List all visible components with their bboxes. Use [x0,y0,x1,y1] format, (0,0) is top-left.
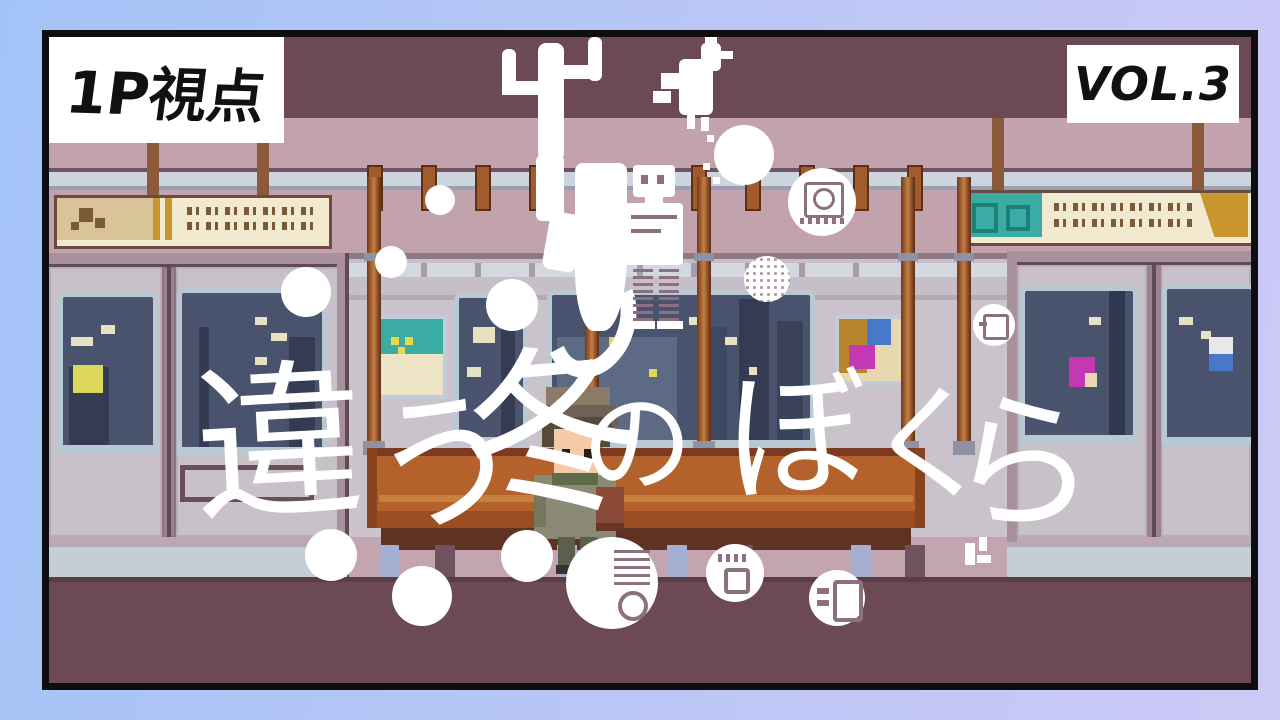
pole-bracket [694,253,714,261]
volume-badge-label: VOL.3 [1074,57,1232,111]
rooster-trail-pixel [713,177,720,184]
snow-dot [425,185,455,215]
washing-machine-drum [813,188,835,210]
cactus-icon [502,49,516,95]
robot-eye [641,175,648,184]
right-door-window-b-frame [1162,284,1256,444]
pole-bracket [898,253,918,261]
banner-teal-pixel [972,203,998,233]
poster-pixel [405,337,413,345]
snow-dot [392,566,452,626]
machine-detail [614,545,650,589]
left-door-window-a-frame [58,292,158,452]
bench-leg [851,545,871,577]
banner-star-pixel [95,218,105,228]
banner-pixel-text [1054,219,1194,227]
machine-detail [833,580,863,622]
robot-leg [633,265,653,321]
snow-dot [281,267,331,317]
rooster-icon [701,43,721,71]
machine-gear [618,591,648,621]
rooster-icon [687,115,695,129]
bench-leg [667,545,687,577]
gear-detail [979,322,987,326]
banner-gold-end [1200,193,1248,237]
robot-icon [633,165,675,197]
banner-pixel-text [187,207,315,215]
ad-banner-left [54,195,332,249]
strap-post [475,165,491,211]
right-door-lintel [1007,251,1251,265]
machine-circle-icon [809,570,865,626]
banner-pixel-text [187,222,315,230]
mini-glyph-icon [977,555,991,563]
machine-circle-icon [706,544,764,602]
title-char-1: 違 [190,356,369,535]
banner-star-pixel [71,222,79,230]
rooster-trail-pixel [703,163,710,170]
snow-dot [568,219,596,247]
ribbon-icon [575,163,627,331]
poster-pixel [867,319,891,345]
left-door-seam-line [167,267,171,537]
cactus-icon [538,43,564,161]
snow-dot [486,279,538,331]
machine-gear [724,568,750,594]
banner-hanger-rod [992,118,1004,190]
rooster-icon [653,91,671,103]
window-sill [58,445,158,453]
robot-panel-line [631,229,661,233]
viewpoint-badge-label: 1P視点 [62,45,271,134]
gear-detail [983,314,1009,340]
gear-circle-icon [973,304,1015,346]
robot-foot [657,321,683,329]
robot-icon [625,203,683,265]
left-door-lintel [49,253,347,267]
machine-detail [817,600,829,606]
robot-eye [657,175,664,184]
half-machine-circle-icon [566,537,658,629]
right-door-seam-line [1152,265,1156,537]
viewpoint-badge: 1P視点 [49,37,284,143]
banner-pixel-text [1054,203,1194,211]
machine-detail [817,588,829,594]
snow-dot [714,125,774,185]
robot-leg [659,265,679,321]
bench-leg [905,545,925,577]
banner-icon-box [57,198,153,240]
banner-teal-pixel [1006,205,1030,231]
washing-machine-icon [788,168,856,236]
banner-hanger-rod [1192,118,1204,190]
rooster-icon [701,117,709,131]
cactus-icon [588,37,602,81]
pixel-train-scene: 違 う 冬 の ぼ く ら 1P視点 VOL.3 [42,30,1258,690]
banner-gold-stripes [153,198,177,240]
rooster-trail-pixel [707,135,714,142]
dotted-circle-icon [744,256,790,302]
title-char-5: ぼ [722,362,871,511]
title-char-4: の [575,383,698,506]
grab-pole [697,177,711,455]
window-sill [1162,437,1251,445]
machine-detail [718,554,748,562]
pole-bracket [954,253,974,261]
rooster-icon [661,73,683,89]
ad-banner-right [957,190,1257,246]
banner-star-pixel [79,208,93,222]
thumbnail-poster: 違 う 冬 の ぼ く ら 1P視点 VOL.3 [0,0,1280,720]
washing-machine-vent [800,218,844,224]
poster-pixel [391,337,399,345]
poster-pixel [398,347,405,354]
volume-badge: VOL.3 [1067,45,1239,123]
robot-panel-line [631,215,677,219]
rooster-icon [721,51,733,59]
left-door-threshold [49,542,347,577]
rooster-icon [705,37,717,45]
snow-dot [375,246,407,278]
title-char-7: ら [943,385,1103,545]
